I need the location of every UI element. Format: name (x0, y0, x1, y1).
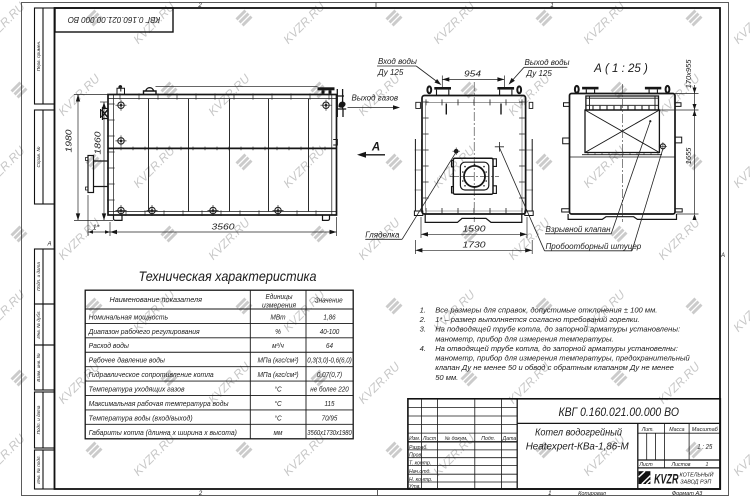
svg-text:Гляделка: Гляделка (365, 230, 400, 239)
svg-text:Все размеры для справок, допус: Все размеры для справок, допустимые откл… (435, 306, 657, 315)
svg-text:170х955: 170х955 (684, 59, 693, 89)
svg-text:Лит.: Лит. (641, 427, 654, 433)
svg-text:МПа (кгс/см²): МПа (кгс/см²) (257, 356, 299, 365)
svg-text:°С: °С (274, 399, 282, 408)
svg-text:КВГ 0.160.021.00.000 ВО: КВГ 0.160.021.00.000 ВО (558, 405, 679, 419)
svg-text:МВт: МВт (270, 312, 285, 321)
svg-text:2: 2 (198, 491, 203, 497)
svg-text:954: 954 (464, 70, 482, 79)
svg-text:Максимальная рабочая температу: Максимальная рабочая температура воды (89, 399, 229, 408)
svg-text:3.: 3. (420, 325, 426, 334)
svg-text:Нач.отд.: Нач.отд. (409, 469, 431, 475)
svg-text:1* – размер выполняется соглас: 1* – размер выполняется согласно требова… (435, 315, 639, 324)
svg-text:Копировал: Копировал (578, 491, 607, 497)
svg-text:№ докум.: № докум. (445, 436, 468, 442)
svg-text:A: A (720, 253, 725, 259)
svg-text:измерения: измерения (262, 301, 296, 310)
svg-text:1,86: 1,86 (323, 312, 336, 321)
svg-text:Пробоотборный штуцер: Пробоотборный штуцер (546, 242, 642, 251)
svg-text:3560х1730х1980: 3560х1730х1980 (307, 428, 352, 437)
svg-text:115: 115 (325, 399, 336, 408)
svg-text:Техническая характеристика: Техническая характеристика (139, 269, 317, 284)
svg-text:Вход воды: Вход воды (378, 57, 417, 66)
svg-text:Лист: Лист (638, 462, 653, 468)
svg-text:70/95: 70/95 (322, 413, 338, 422)
svg-text:Подп. и дата: Подп. и дата (36, 405, 41, 434)
svg-text:2: 2 (197, 3, 202, 9)
svg-text:Инв. № дубл.: Инв. № дубл. (36, 310, 41, 338)
svg-text:64: 64 (326, 341, 333, 350)
svg-text:Изм.: Изм. (409, 436, 420, 442)
svg-text:Выход газов: Выход газов (352, 93, 399, 102)
svg-text:Листов: Листов (671, 462, 691, 468)
svg-text:Значение: Значение (315, 295, 343, 304)
svg-text:Разраб.: Разраб. (409, 445, 428, 451)
svg-text:1: 1 (550, 3, 553, 9)
svg-text:Дата: Дата (502, 436, 517, 442)
svg-text:1980: 1980 (65, 129, 74, 153)
svg-text:м³/ч: м³/ч (272, 341, 284, 350)
svg-text:ЗАВОД РЭП: ЗАВОД РЭП (680, 479, 711, 485)
svg-text:Габариты котла (длинна х ширин: Габариты котла (длинна х ширина х высота… (89, 428, 238, 437)
svg-text:Рабочее давление воды: Рабочее давление воды (89, 356, 166, 365)
svg-text:KVZR: KVZR (654, 471, 679, 487)
svg-text:Перв. примен.: Перв. примен. (36, 41, 41, 72)
svg-text:1*: 1* (92, 223, 100, 232)
svg-text:40-100: 40-100 (320, 327, 340, 336)
svg-text:манометр, прибор для измерения: манометр, прибор для измерения температу… (435, 334, 613, 343)
svg-text:Формат А3: Формат А3 (672, 491, 703, 497)
svg-text:Heatexpert-КВа-1,86-М: Heatexpert-КВа-1,86-М (526, 442, 629, 453)
svg-text:А: А (371, 142, 380, 154)
svg-text:Взам. инв. №: Взам. инв. № (36, 353, 41, 381)
svg-text:Т. контр.: Т. контр. (409, 461, 431, 467)
svg-text:Инв. № подл.: Инв. № подл. (36, 455, 41, 484)
svg-text:Н. контр.: Н. контр. (409, 477, 432, 483)
svg-text:Диапазон рабочего регулировани: Диапазон рабочего регулирования (88, 327, 200, 336)
svg-text:Номинальная мощность: Номинальная мощность (89, 312, 169, 321)
svg-text:50 мм.: 50 мм. (435, 373, 458, 382)
svg-text:1655: 1655 (684, 147, 693, 165)
svg-text:Подп. и дата: Подп. и дата (36, 262, 41, 291)
svg-text:4.: 4. (420, 344, 426, 353)
svg-text:3560: 3560 (212, 223, 236, 232)
svg-text:Температура воды (вход/выход): Температура воды (вход/выход) (89, 413, 193, 422)
svg-text:Подп.: Подп. (481, 436, 495, 442)
svg-text:A: A (46, 242, 51, 248)
svg-text:°С: °С (274, 413, 282, 422)
svg-text:Ду 125: Ду 125 (526, 69, 553, 78)
svg-text:°С: °С (274, 385, 282, 394)
svg-text:1 : 25: 1 : 25 (697, 444, 712, 451)
svg-text:Справ. №: Справ. № (36, 147, 41, 168)
svg-text:1: 1 (548, 491, 551, 497)
svg-text:1.: 1. (420, 306, 426, 315)
svg-text:1860: 1860 (94, 131, 103, 155)
svg-text:1730: 1730 (463, 240, 487, 249)
svg-text:Выход воды: Выход воды (525, 58, 570, 67)
svg-text:Наименование показателя: Наименование показателя (110, 295, 203, 304)
svg-text:не более 220: не более 220 (310, 385, 349, 394)
svg-text:А ( 1 : 25 ): А ( 1 : 25 ) (593, 63, 648, 75)
svg-text:Пров.: Пров. (409, 453, 423, 459)
svg-text:Единицы: Единицы (266, 292, 293, 301)
svg-text:манометр, прибор для измерения: манометр, прибор для измерения температу… (435, 354, 690, 363)
svg-text:Ду 125: Ду 125 (377, 68, 404, 77)
svg-text:Утв.: Утв. (409, 484, 421, 490)
svg-text:1590: 1590 (463, 224, 487, 233)
svg-text:КОТЕЛЬНЫЙ: КОТЕЛЬНЫЙ (680, 471, 714, 479)
svg-text:0,3(3,0)-0,6(6,0): 0,3(3,0)-0,6(6,0) (307, 356, 352, 365)
svg-text:На отводящей трубе котла, до з: На отводящей трубе котла, до запорной ар… (435, 344, 678, 353)
svg-text:Гидравлическое сопротивление к: Гидравлическое сопротивление котла (89, 370, 214, 379)
svg-text:клапан Ду не менее 50 и обвод: клапан Ду не менее 50 и обвод с обратным… (435, 363, 674, 372)
svg-text:Масса: Масса (669, 427, 684, 433)
svg-text:КВГ 0.160.021.00.000 ВО: КВГ 0.160.021.00.000 ВО (68, 15, 161, 24)
svg-text:мм: мм (274, 428, 283, 437)
svg-text:Взрывной клапан: Взрывной клапан (546, 225, 612, 234)
svg-text:Масштаб: Масштаб (692, 427, 719, 433)
svg-text:Расход воды: Расход воды (89, 341, 130, 350)
svg-text:0,07(0,7): 0,07(0,7) (317, 370, 343, 379)
svg-text:На подводящей трубе котла, до: На подводящей трубе котла, до запорной а… (435, 325, 680, 334)
svg-text:Температура уходящих газов: Температура уходящих газов (89, 385, 185, 394)
svg-text:1: 1 (706, 462, 709, 468)
svg-text:Котел водогрейный: Котел водогрейный (535, 427, 622, 438)
svg-text:2.: 2. (419, 315, 426, 324)
svg-text:%: % (275, 327, 281, 336)
svg-text:МПа (кгс/см²): МПа (кгс/см²) (257, 370, 299, 379)
svg-text:Лист: Лист (422, 436, 437, 442)
